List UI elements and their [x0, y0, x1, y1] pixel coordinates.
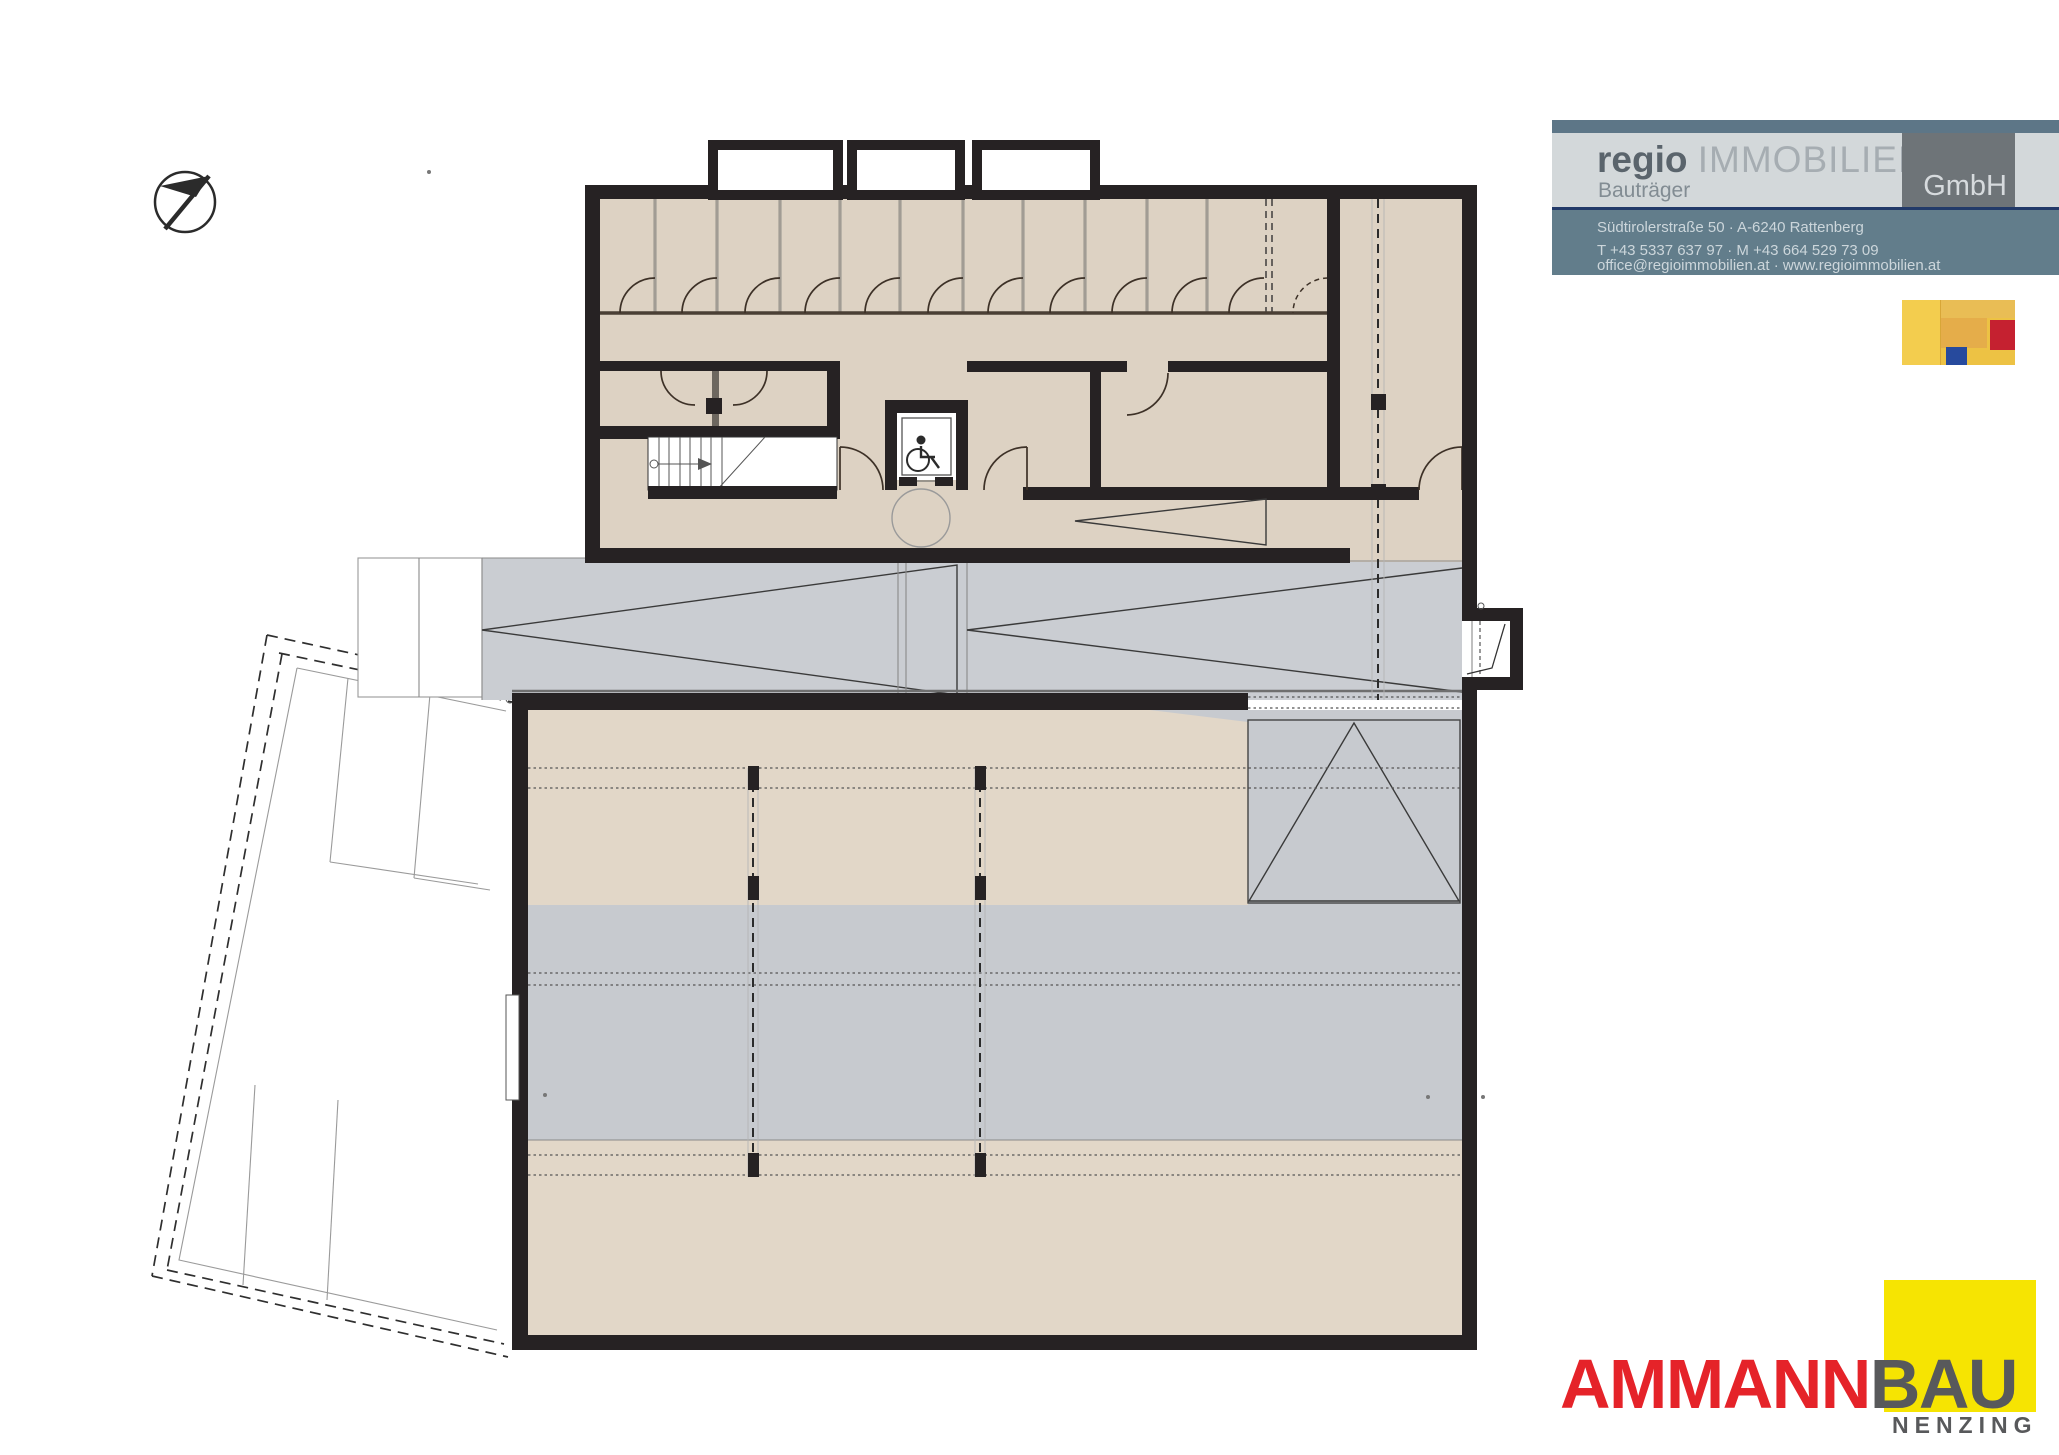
regio-subtitle: Bauträger: [1598, 179, 1690, 203]
floorplan-page: regio IMMOBILIEN Bauträger GmbH Südtirol…: [0, 0, 2059, 1455]
regio-top-strip: [1552, 120, 2059, 133]
ammann-bau-logo: AMMANNBAU NENZING: [1552, 1270, 2059, 1450]
regio-gmbh-box: GmbH: [1902, 133, 2015, 207]
art-tile: [1902, 300, 1941, 365]
garage: [506, 678, 1485, 1350]
regio-brand-bold: regio: [1597, 139, 1687, 180]
regio-web: office@regioimmobilien.at · www.regioimm…: [1597, 257, 1940, 274]
existing-building-outline: [152, 635, 516, 1357]
ramp-corridor: [482, 558, 1462, 700]
regio-contact-band: Südtirolerstraße 50 · A-6240 Rattenberg …: [1552, 210, 2059, 275]
art-tile-blue: [1946, 347, 1967, 365]
ammann-name: AMMANN: [1560, 1345, 1870, 1423]
art-tile: [1941, 318, 1987, 348]
north-arrow-icon: [155, 172, 215, 232]
ramp-side-room: [358, 558, 482, 697]
regio-address: Südtirolerstraße 50 · A-6240 Rattenberg: [1597, 219, 1864, 236]
ammann-city: NENZING: [1892, 1412, 2038, 1439]
regio-immobilien-logo: regio IMMOBILIEN Bauträger GmbH Südtirol…: [1552, 120, 2059, 275]
regio-art-image: [1902, 300, 2015, 365]
regio-gmbh-label: GmbH: [1923, 170, 2007, 203]
art-tile: [1941, 300, 2015, 318]
exit-door: [1462, 603, 1523, 690]
light-wells: [713, 145, 1095, 195]
staircase: [648, 437, 837, 499]
regio-brand-light: IMMOBILIEN: [1698, 139, 1926, 180]
regio-brand-name: regio IMMOBILIEN: [1597, 139, 1926, 181]
regio-brand-band: regio IMMOBILIEN Bauträger GmbH: [1552, 133, 2059, 207]
garage-ramp: [1248, 720, 1460, 903]
art-tile-red: [1990, 320, 2015, 350]
